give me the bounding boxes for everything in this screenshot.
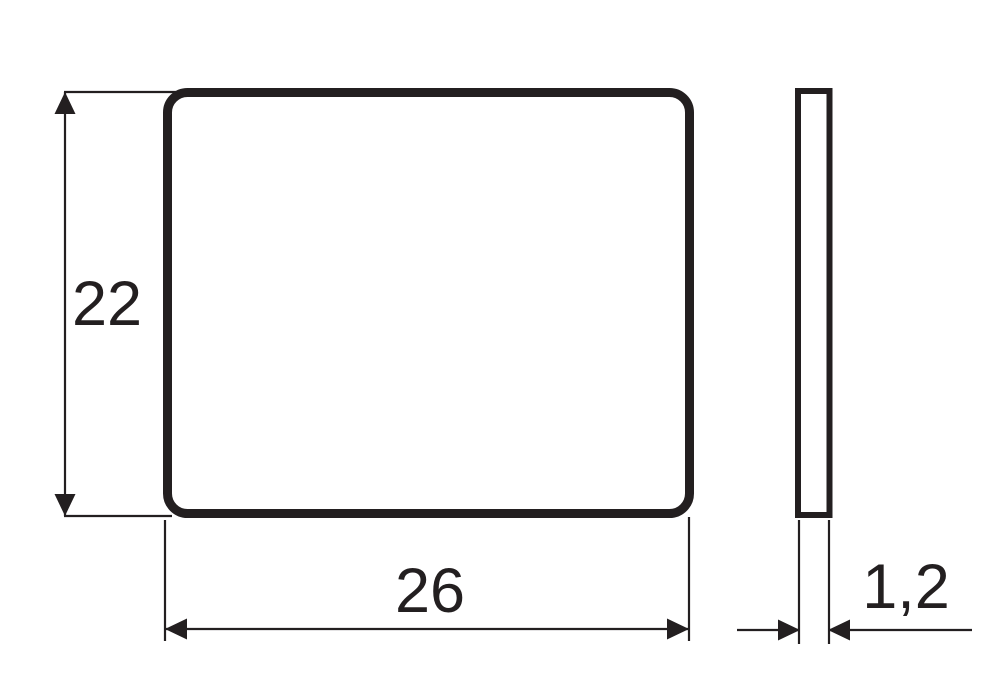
arrow-right-icon [667,619,689,640]
thickness-dimension: 1,2 [737,520,972,644]
plate-front-outline [168,93,690,514]
drawing-canvas: 22 26 1,2 [0,0,991,695]
front-view [168,93,690,514]
arrow-up-icon [55,92,76,114]
height-dimension-label: 22 [72,269,142,339]
arrow-right-icon [778,620,800,641]
width-dimension: 26 [165,517,689,641]
thickness-dimension-label: 1,2 [862,552,950,622]
plate-side-outline [798,91,830,515]
arrow-down-icon [55,494,76,516]
height-dimension: 22 [55,92,177,516]
side-view [798,91,830,515]
arrow-left-icon [165,619,187,640]
arrow-left-icon [828,620,850,641]
technical-drawing: 22 26 1,2 [0,0,991,695]
width-dimension-label: 26 [395,556,465,626]
